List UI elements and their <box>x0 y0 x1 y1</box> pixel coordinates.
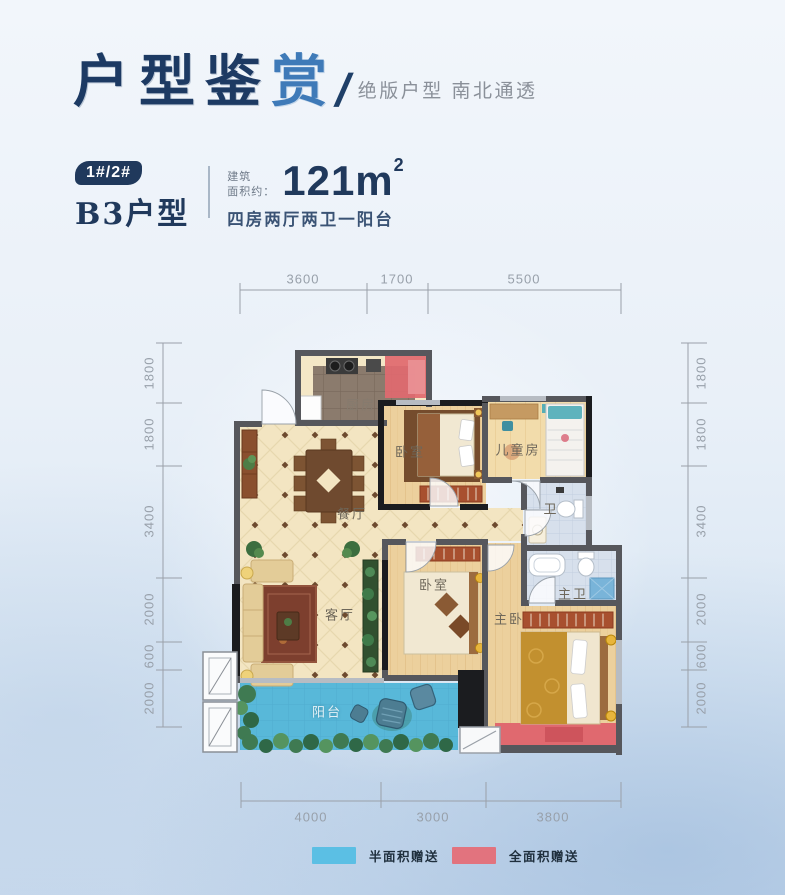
room-label-kids-room: 儿童房 <box>495 440 540 459</box>
layout-description: 四房两厅两卫一阳台 <box>227 206 403 230</box>
floorplan-graphic <box>0 0 785 895</box>
page-header: 户型鉴 赏 / 绝版户型 南北通透 <box>73 54 538 110</box>
dim-right-1: 1800 <box>694 357 709 390</box>
dim-top-3: 5500 <box>508 272 541 287</box>
dim-bottom-3: 3800 <box>537 810 570 825</box>
dim-left-1: 1800 <box>142 357 157 390</box>
unit-info: 1#/2# B3户型 建筑 面积约： 121m 2 四房两厅两卫一阳台 <box>75 161 404 233</box>
dim-right-3: 3400 <box>694 505 709 538</box>
dim-right-4: 2000 <box>694 593 709 626</box>
dim-left-2: 1800 <box>142 418 157 451</box>
dim-bottom-1: 4000 <box>295 810 328 825</box>
dim-right-2: 1800 <box>694 418 709 451</box>
legend-label-half-area: 半面积赠送 <box>369 846 439 865</box>
page-title: 户型鉴 <box>73 54 271 110</box>
floorplan-advert-page: 户型鉴 赏 / 绝版户型 南北通透 1#/2# B3户型 建筑 面积约： 121… <box>0 0 785 895</box>
dim-left-6: 2000 <box>142 682 157 715</box>
dim-left-3: 3400 <box>142 505 157 538</box>
vertical-divider <box>208 166 210 218</box>
page-title-accent: 赏 <box>271 54 337 110</box>
legend-label-full-area: 全面积赠送 <box>509 846 579 865</box>
dim-left-5: 600 <box>142 644 157 669</box>
dim-right-5: 600 <box>694 644 709 669</box>
dim-top-1: 3600 <box>287 272 320 287</box>
room-label-master-bath: 主卫 <box>558 584 588 603</box>
unit-name: B3户型 <box>75 189 189 233</box>
legend-item-full-area: 全面积赠送 <box>452 846 579 865</box>
unit-id-block: 1#/2# B3户型 <box>75 161 189 233</box>
room-label-living: 客厅 <box>325 605 355 624</box>
area-unit-sup: 2 <box>394 155 404 176</box>
room-label-bedroom-mid: 卧室 <box>419 575 449 594</box>
dim-top-2: 1700 <box>381 272 414 287</box>
area-value: 121m <box>282 161 393 201</box>
legend-item-half-area: 半面积赠送 <box>312 846 439 865</box>
legend-swatch-blue <box>312 847 356 864</box>
unit-area-block: 建筑 面积约： 121m 2 四房两厅两卫一阳台 <box>227 161 403 230</box>
dim-bottom-2: 3000 <box>417 810 450 825</box>
room-label-bath: 卫 <box>543 499 558 518</box>
dim-right-6: 2000 <box>694 682 709 715</box>
legend-swatch-red <box>452 847 496 864</box>
dim-left-4: 2000 <box>142 593 157 626</box>
room-label-balcony: 阳台 <box>312 702 342 721</box>
page-subtitle: 绝版户型 南北通透 <box>358 76 538 110</box>
building-badge: 1#/2# <box>75 161 142 185</box>
area-prefix: 建筑 面积约： <box>227 170 275 201</box>
room-label-kitchen: 厨房 <box>346 395 376 414</box>
room-label-dining: 餐厅 <box>337 504 367 523</box>
room-label-master-bedroom: 主卧 <box>494 609 524 628</box>
room-label-bedroom-top: 卧室 <box>395 442 425 461</box>
